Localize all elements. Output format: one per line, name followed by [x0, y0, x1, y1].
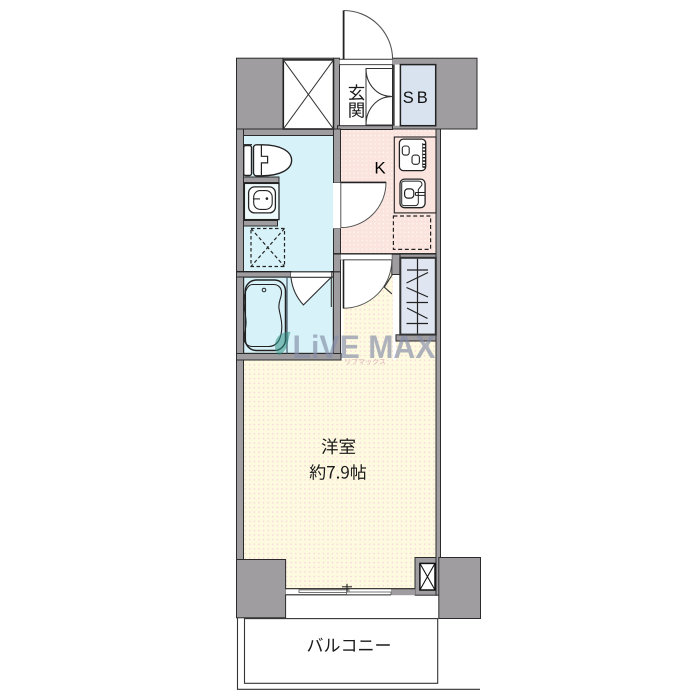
svg-text:SB: SB	[403, 89, 431, 107]
svg-text:LiVE MAX: LiVE MAX	[293, 329, 437, 365]
svg-text:K: K	[374, 159, 386, 178]
